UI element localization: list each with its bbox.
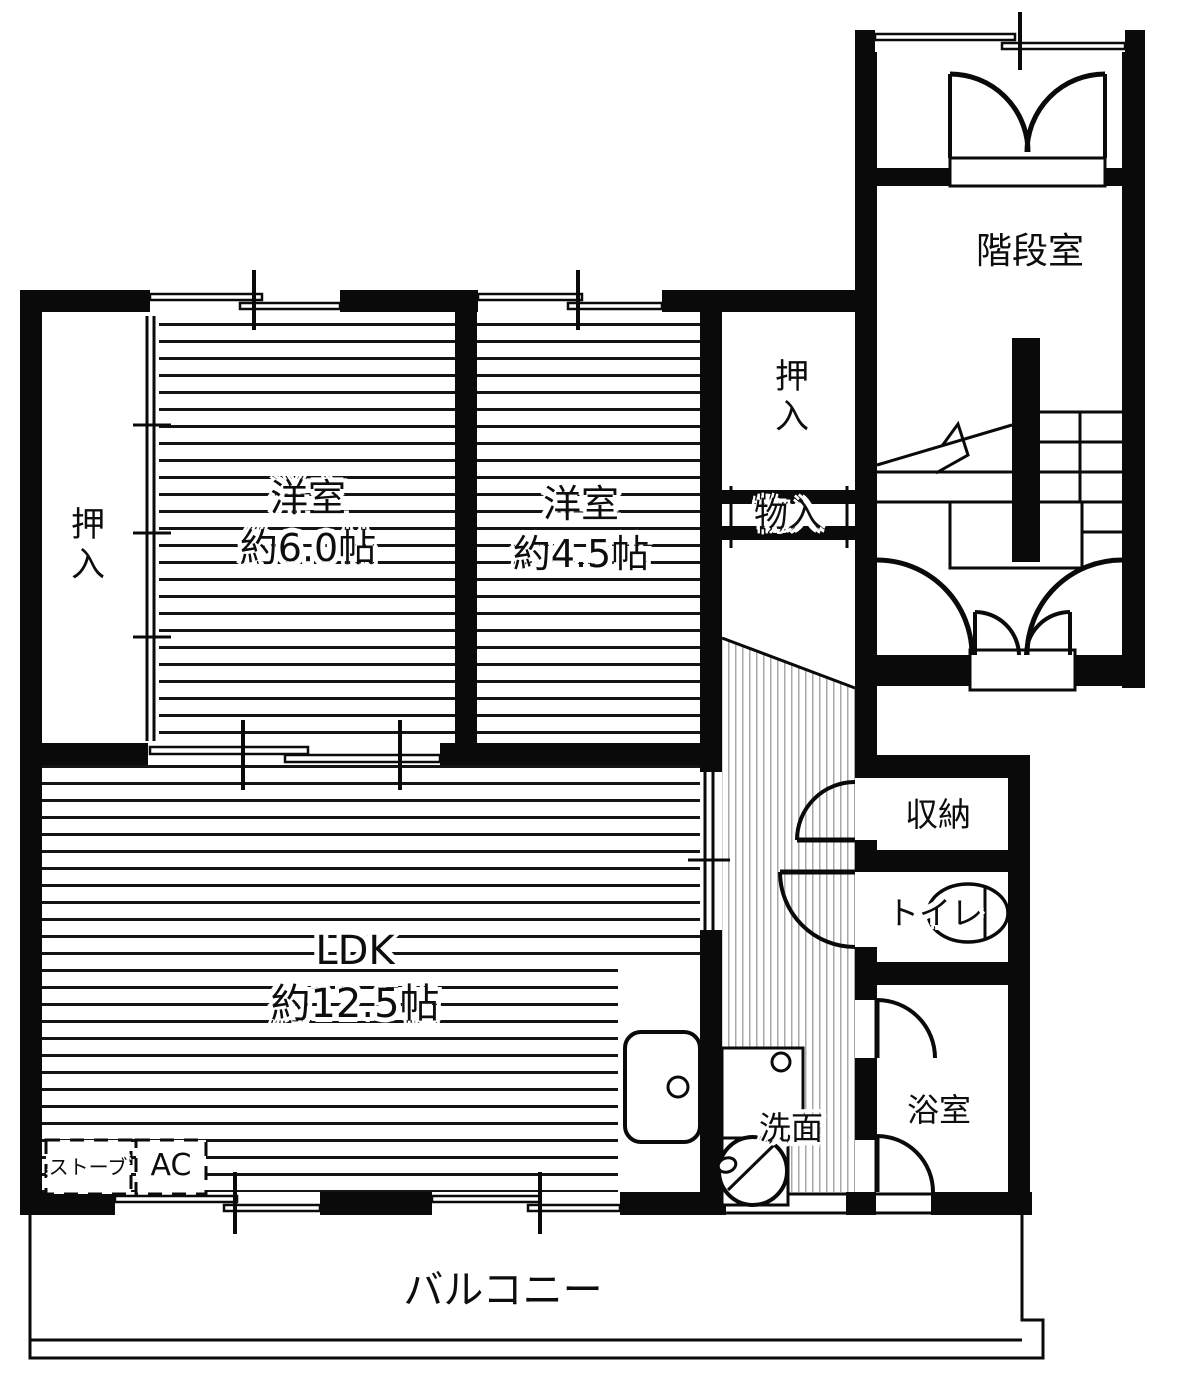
room-name: LDK xyxy=(270,925,439,978)
room-label-bathroom: 浴室 xyxy=(907,1089,971,1131)
room-label-balcony: バルコニー xyxy=(403,1265,602,1318)
room-name: 洋室 xyxy=(513,479,649,529)
landing-sill xyxy=(970,650,1075,690)
room-label-stairwell: 階段室 xyxy=(976,228,1084,276)
landing-entrance-doors-icon xyxy=(877,560,1122,655)
room-size: 約6.0帖 xyxy=(240,523,376,573)
room-label-closet-top: 押入 xyxy=(766,358,811,438)
equipment-label-stove: ストーブ xyxy=(49,1154,128,1180)
room-size: 約4.5帖 xyxy=(513,529,649,579)
room-size: 約12.5帖 xyxy=(270,978,439,1031)
room-label-toilet: トイレ xyxy=(887,892,983,934)
bath-lower-door-icon xyxy=(877,1136,933,1192)
room-name: 洋室 xyxy=(240,473,376,523)
room-label-storage-shelf: 物入 xyxy=(754,494,822,539)
floorplan-canvas: 階段室 押入 物入 押入 洋室 約6.0帖 洋室 約4.5帖 LDK 約12.5… xyxy=(0,0,1200,1385)
room-label-bedroom-6: 洋室 約6.0帖 xyxy=(240,473,376,573)
stairs-icon xyxy=(877,338,1122,568)
room-label-bedroom-45: 洋室 約4.5帖 xyxy=(513,479,649,579)
room-label-ldk: LDK 約12.5帖 xyxy=(270,925,439,1031)
vestibule-double-door-icon xyxy=(950,74,1105,158)
vestibule-sill xyxy=(950,158,1105,186)
kitchen-sink-icon xyxy=(625,1032,700,1142)
equipment-label-ac: AC xyxy=(151,1146,192,1186)
room-label-washroom: 洗面 xyxy=(759,1107,823,1149)
sliding-window-icon xyxy=(875,12,1125,70)
room-label-closet-left: 押入 xyxy=(62,506,107,586)
bath-door-icon xyxy=(877,1000,935,1058)
room-label-storage: 収納 xyxy=(905,793,971,837)
